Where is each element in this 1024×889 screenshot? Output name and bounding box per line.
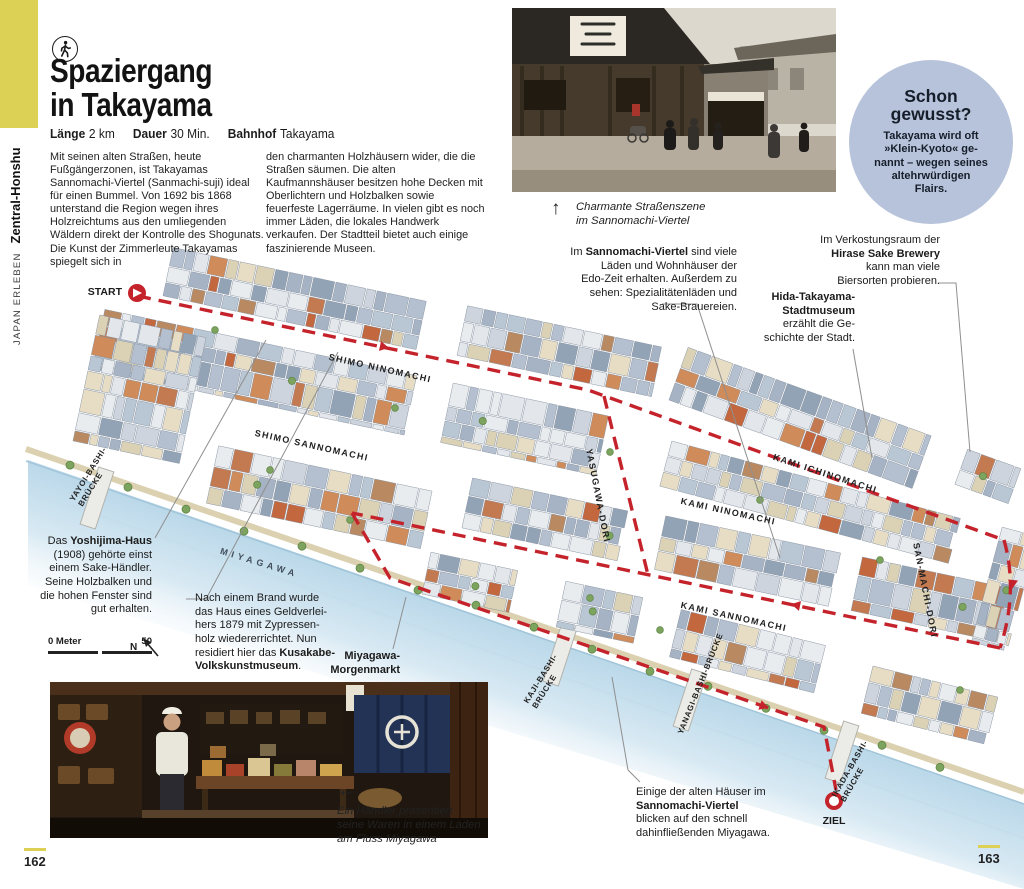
page-number-right: 163 — [978, 851, 1000, 866]
bridge-label-ikada-bashi: IKADA-BASHI- BRÜCKE — [830, 739, 880, 805]
bridge-label-kaji-bashi: KAJI-BASHI- BRÜCKE — [522, 652, 569, 711]
caption-arrow-left: ← — [337, 780, 356, 802]
bubble-text: Takayama wird oft »Klein-Kyoto« ge- nann… — [874, 130, 988, 197]
fact-length: Länge2 km — [50, 126, 115, 141]
annotation-sannomachi-viertel: Im Sannomachi-Viertel sind viele Läden u… — [497, 246, 737, 314]
annotation-hirase-brewery: Im Verkostungsraum der Hirase Sake Brewe… — [780, 234, 940, 289]
street-label-yasugawa-dori: YASUGAWA-DORI — [584, 448, 612, 544]
street-label-kami-sannomachi: KAMI SANNOMACHI — [680, 600, 788, 633]
sidebar-accent-block — [0, 0, 38, 128]
annotation-hida-stadtmuseum: Hida-Takayama- Stadtmuseum erzählt die G… — [745, 291, 855, 346]
fact-station: BahnhofTakayama — [228, 126, 335, 141]
bridge-label-yanagi-bashi: YANAGI-BASHI-BRÜCKE — [676, 632, 726, 736]
title-line-2: in Takayama — [50, 88, 212, 122]
north-arrow-icon — [140, 634, 162, 658]
intro-column-2: den charmanten Holzhäusern wider, die di… — [266, 151, 485, 256]
sidebar-section: JAPAN ERLEBEN — [12, 252, 23, 345]
caption-arrow-up: ↑ — [551, 198, 561, 220]
page-number-left: 162 — [24, 854, 46, 869]
north-letter: N — [130, 642, 137, 653]
bottom-photo-caption: Ein Händler präsentiert seine Waren in e… — [337, 804, 481, 847]
start-marker — [128, 284, 146, 302]
footer-right-accent — [978, 845, 1000, 848]
intro-column-1: Mit seinen alten Straßen, heute Fußgänge… — [50, 151, 265, 269]
page-title: Spaziergang in Takayama — [50, 54, 212, 121]
fact-duration: Dauer30 Min. — [133, 126, 210, 141]
river-label-miyagawa: MIYAGAWA — [219, 546, 300, 579]
bubble-title: Schon gewusst? — [891, 87, 972, 124]
street-scene-photo — [512, 8, 836, 192]
title-line-1: Spaziergang — [50, 54, 212, 88]
sidebar-section-label: JAPAN ERLEBENZentral-Honshu — [7, 147, 25, 345]
annotation-yoshijima-haus: Das Yoshijima-Haus (1908) gehörte einst … — [30, 535, 152, 617]
footer-right: 163 — [978, 845, 1000, 866]
street-label-shimo-sannomachi: SHIMO SANNOMACHI — [254, 428, 370, 463]
annotation-alte-haeuser: Einige der alten Häuser im Sannomachi-Vi… — [636, 786, 786, 841]
north-indicator: N — [130, 634, 162, 658]
street-label-kami-ichinomachi: KAMI ICHINOMACHI — [772, 452, 879, 495]
annotation-morgenmarkt: Miyagawa- Morgenmarkt — [315, 650, 400, 677]
guidebook-page-spread: { "sidebar": { "section": "JAPAN ERLEBEN… — [0, 0, 1024, 889]
street-label-san-machi-dori: SAN-MACHI-DORI — [911, 542, 939, 639]
tour-facts: Länge2 km Dauer30 Min. BahnhofTakayama — [50, 126, 349, 141]
route-arrows — [379, 341, 1018, 713]
scale-zero: 0 Meter — [48, 636, 81, 647]
footer-left-accent — [24, 848, 46, 851]
sidebar-region: Zentral-Honshu — [8, 147, 23, 243]
footer-left: 162 — [24, 848, 46, 869]
top-photo-caption: Charmante Straßenszene im Sannomachi-Vie… — [576, 200, 705, 228]
street-label-shimo-ninomachi: SHIMO NINOMACHI — [328, 352, 433, 384]
bridge-label-yayoi-bashi: YAYOI-BASHI- BRÜCKE — [68, 445, 119, 509]
ziel-label: ZIEL — [812, 815, 856, 827]
noren-curtain — [354, 695, 450, 773]
did-you-know-bubble: Schon gewusst? Takayama wird oft »Klein-… — [849, 60, 1013, 224]
street-label-kami-ninomachi: KAMI NINOMACHI — [680, 496, 777, 527]
start-label: START — [76, 286, 122, 298]
